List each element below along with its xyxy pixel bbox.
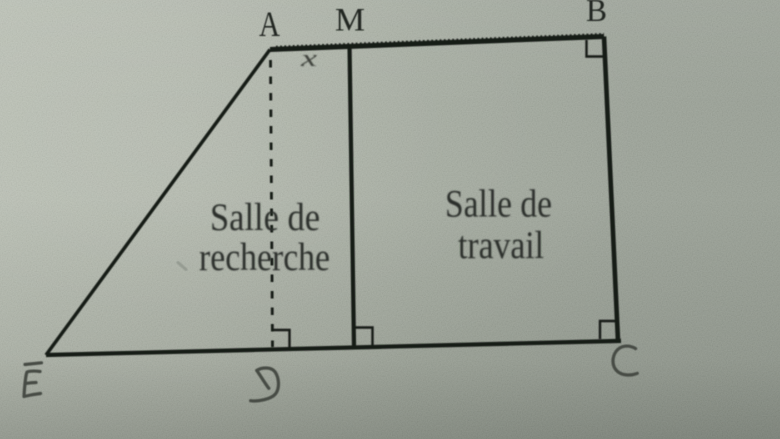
svg-text:M: M [335, 3, 365, 39]
svg-text:B: B [586, 0, 607, 28]
svg-text:A: A [259, 4, 280, 44]
svg-text:recherche: recherche [199, 236, 330, 279]
svg-text:x: x [299, 46, 317, 72]
svg-text:travail: travail [458, 224, 544, 267]
svg-text:Salle de: Salle de [445, 183, 552, 226]
svg-text:Salle de: Salle de [210, 196, 320, 239]
